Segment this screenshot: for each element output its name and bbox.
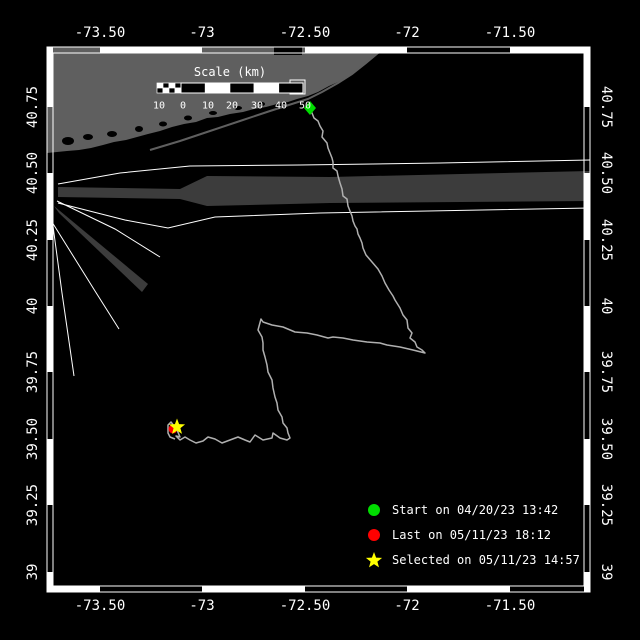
selected-star-icon	[365, 551, 383, 569]
last-circle-icon	[365, 526, 383, 544]
coastal-bay	[135, 126, 143, 132]
scale-bar-check-cell	[163, 88, 169, 93]
frame-zebra-segment	[100, 47, 202, 53]
legend-row-last-circle: Last on 05/11/23 18:12	[365, 526, 551, 544]
axis-tick-left-39: 39	[25, 564, 41, 581]
axis-tick-left-39.75: 39.75	[25, 351, 41, 393]
axis-tick-right-40.75: 40.75	[598, 86, 614, 128]
axis-tick-bottom--72: -72	[394, 598, 419, 614]
frame-zebra-segment	[584, 306, 590, 372]
axis-tick-right-40.25: 40.25	[598, 219, 614, 261]
scale-bar-check-cell	[157, 88, 163, 93]
coastal-bay	[184, 116, 192, 121]
frame-zebra-segment	[47, 306, 53, 372]
frame-zebra-segment	[584, 572, 590, 592]
frame-zebra-segment	[510, 47, 590, 53]
map-plot	[0, 0, 640, 640]
scale-bar-number: 40	[275, 101, 287, 112]
axis-tick-bottom--73.50: -73.50	[75, 598, 126, 614]
scale-bar-number: 30	[251, 101, 263, 112]
legend-label: Last on 05/11/23 18:12	[392, 528, 551, 542]
axis-tick-left-39.50: 39.50	[25, 418, 41, 460]
frame-zebra-segment	[47, 439, 53, 505]
frame-zebra-segment	[584, 439, 590, 505]
frame-zebra-segment	[47, 586, 100, 592]
coastal-bay	[107, 131, 117, 137]
shipping-lane-line-2	[57, 201, 160, 257]
shipping-lane-band-east	[58, 171, 590, 206]
frame-zebra-segment	[47, 47, 53, 107]
scale-bar-check-cell	[175, 83, 181, 88]
land-long-island	[47, 47, 390, 153]
legend-row-start-circle: Start on 04/20/23 13:42	[365, 501, 558, 519]
axis-tick-right-40: 40	[598, 298, 614, 315]
axis-tick-top--72.50: -72.50	[280, 25, 331, 41]
scale-bar-number: 0	[180, 101, 186, 112]
scale-bar-check-cell	[163, 83, 169, 88]
axis-tick-top--73.50: -73.50	[75, 25, 126, 41]
scale-bar-check-cell	[157, 83, 163, 88]
scale-bar-cell	[205, 83, 229, 93]
harbor-notch	[274, 47, 302, 55]
scale-bar-number: 10	[202, 101, 214, 112]
axis-tick-top--73: -73	[189, 25, 214, 41]
axis-tick-left-40.75: 40.75	[25, 86, 41, 128]
axis-tick-right-39: 39	[598, 564, 614, 581]
axis-tick-bottom--73: -73	[189, 598, 214, 614]
coastal-bay	[62, 137, 74, 145]
legend-label: Selected on 05/11/23 14:57	[392, 553, 580, 567]
scale-bar-cell	[279, 83, 303, 93]
legend-label: Start on 04/20/23 13:42	[392, 503, 558, 517]
frame-zebra-segment	[47, 572, 53, 592]
start-circle-icon	[365, 501, 383, 519]
axis-tick-top--72: -72	[394, 25, 419, 41]
axis-tick-right-40.50: 40.50	[598, 152, 614, 194]
frame-zebra-segment	[202, 586, 305, 592]
axis-tick-left-40: 40	[25, 298, 41, 315]
axis-tick-top--71.50: -71.50	[485, 25, 536, 41]
scale-bar-cell	[181, 83, 205, 93]
axis-tick-left-40.25: 40.25	[25, 219, 41, 261]
axis-tick-bottom--72.50: -72.50	[280, 598, 331, 614]
frame-zebra-segment	[47, 173, 53, 240]
frame-zebra-segment	[584, 173, 590, 240]
drifter-track[interactable]	[168, 108, 425, 443]
coastal-bay	[159, 122, 167, 127]
map-window: -73.50-73-72.50-72-71.50-73.50-73-72.50-…	[0, 0, 640, 640]
scale-bar-number: 10	[153, 101, 165, 112]
axis-tick-right-39.75: 39.75	[598, 351, 614, 393]
scale-bar-number: 20	[226, 101, 238, 112]
scale-bar-title: Scale (km)	[194, 65, 266, 79]
shipping-lane-band-southeast	[54, 206, 148, 292]
coastal-bay	[83, 134, 93, 140]
scale-bar-cell	[254, 83, 278, 93]
axis-tick-left-39.25: 39.25	[25, 484, 41, 526]
coastal-bay	[209, 111, 217, 115]
frame-zebra-segment	[305, 47, 407, 53]
scale-bar-check-cell	[175, 88, 181, 93]
axis-tick-right-39.25: 39.25	[598, 484, 614, 526]
shipping-lane-line-1	[58, 203, 590, 228]
scale-bar-cell	[230, 83, 254, 93]
frame-zebra-segment	[407, 586, 510, 592]
scale-bar-check-cell	[169, 83, 175, 88]
axis-tick-left-40.50: 40.50	[25, 152, 41, 194]
axis-tick-right-39.50: 39.50	[598, 418, 614, 460]
axis-tick-bottom--71.50: -71.50	[485, 598, 536, 614]
shipping-lane-line-4	[51, 211, 74, 376]
legend-row-selected-star: Selected on 05/11/23 14:57	[365, 551, 580, 569]
scale-bar-number: 50	[299, 101, 311, 112]
scale-bar-check-cell	[169, 88, 175, 93]
frame-zebra-segment	[584, 47, 590, 107]
